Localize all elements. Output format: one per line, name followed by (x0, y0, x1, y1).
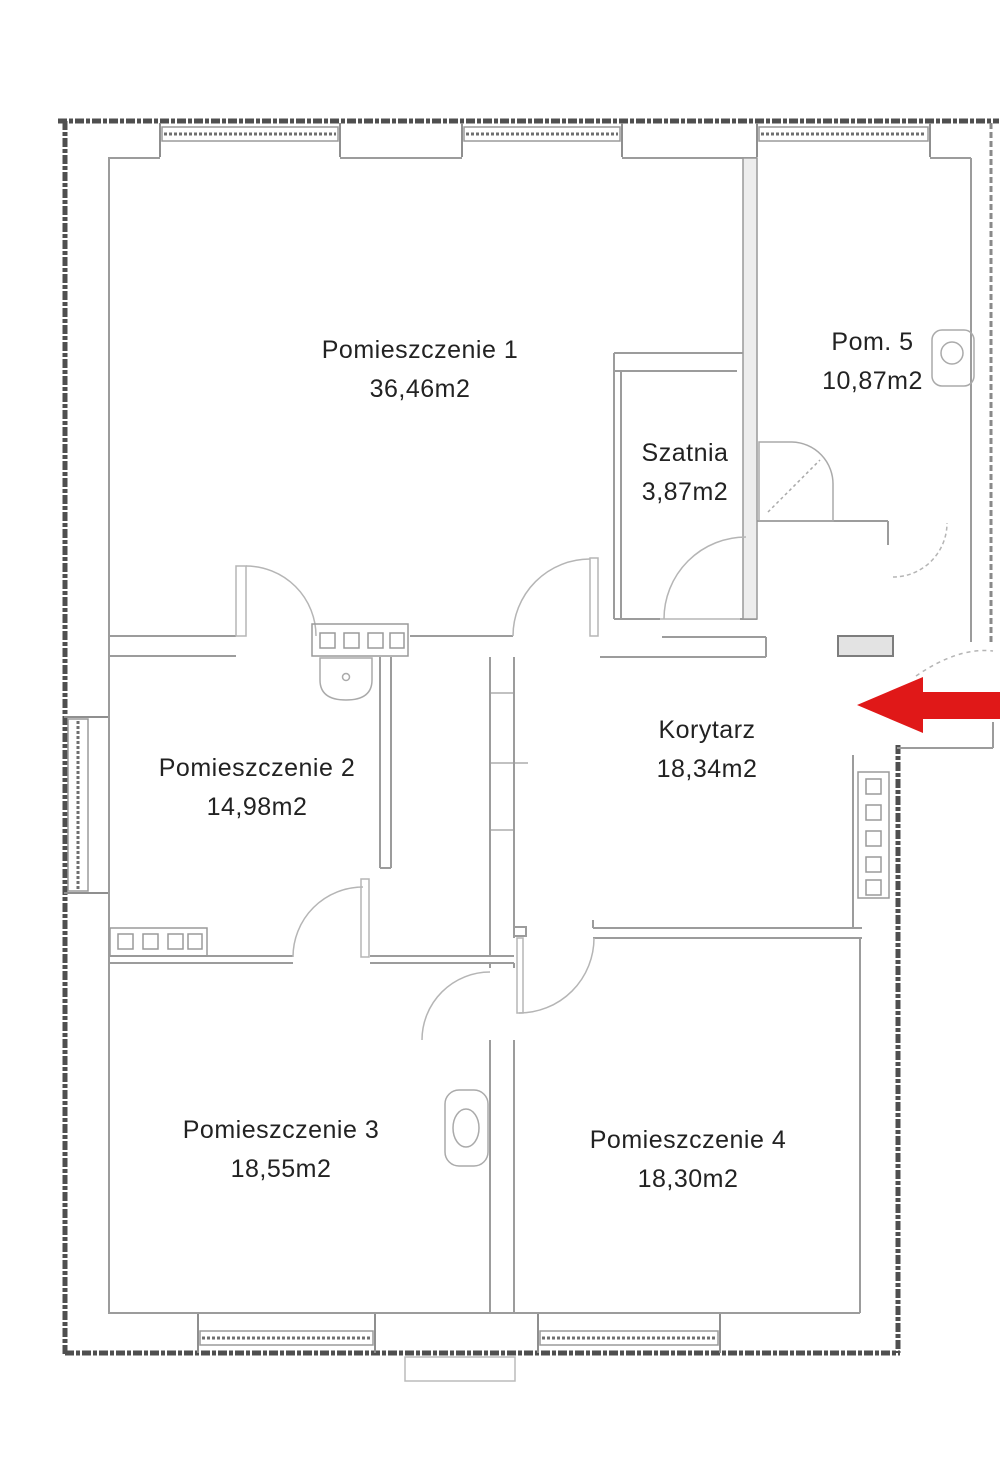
room-label-korytarz: Korytarz 18,34m2 (628, 711, 786, 789)
room-area: 18,30m2 (534, 1160, 842, 1199)
door-room2-room3 (293, 879, 369, 957)
room-area: 18,34m2 (628, 750, 786, 789)
room-label-pomieszczenie-2: Pomieszczenie 2 14,98m2 (107, 749, 407, 827)
door-entrance (916, 651, 993, 676)
room-area: 10,87m2 (795, 362, 950, 401)
room-area: 14,98m2 (107, 788, 407, 827)
room-name: Pomieszczenie 2 (107, 749, 407, 788)
door-szatnia (664, 537, 746, 619)
door-room3-room4 (422, 972, 490, 1040)
room-name: Korytarz (628, 711, 786, 750)
floor-plan-drawing (0, 0, 1000, 1481)
room-area: 36,46m2 (250, 370, 590, 409)
sink-icon (320, 658, 372, 700)
room-name: Pomieszczenie 1 (250, 331, 590, 370)
room-label-pom-5: Pom. 5 10,87m2 (795, 323, 950, 401)
entrance-arrow-icon (857, 677, 1000, 733)
radiator-icon (110, 928, 207, 956)
sink-icon (445, 1090, 488, 1166)
radiator-icon (858, 772, 889, 898)
bearing-wall (743, 158, 757, 619)
door-pom5 (893, 523, 947, 577)
floor-plan: Pomieszczenie 1 36,46m2 Pom. 5 10,87m2 S… (0, 0, 1000, 1481)
entry-step (405, 1357, 515, 1381)
room-name: Pomieszczenie 4 (534, 1121, 842, 1160)
door-room1-korytarz (513, 558, 598, 636)
room-label-pomieszczenie-1: Pomieszczenie 1 36,46m2 (250, 331, 590, 409)
room-area: 3,87m2 (610, 473, 760, 512)
room-name: Pomieszczenie 3 (131, 1111, 431, 1150)
room-area: 18,55m2 (131, 1150, 431, 1189)
radiator-icon (312, 624, 408, 656)
room-label-pomieszczenie-4: Pomieszczenie 4 18,30m2 (534, 1121, 842, 1199)
room-label-szatnia: Szatnia 3,87m2 (610, 434, 760, 512)
door-room1-room2 (236, 566, 316, 636)
room-name: Szatnia (610, 434, 760, 473)
shower-icon (759, 442, 833, 521)
room-label-pomieszczenie-3: Pomieszczenie 3 18,55m2 (131, 1111, 431, 1189)
door-korytarz-room4 (517, 938, 594, 1013)
room-name: Pom. 5 (795, 323, 950, 362)
